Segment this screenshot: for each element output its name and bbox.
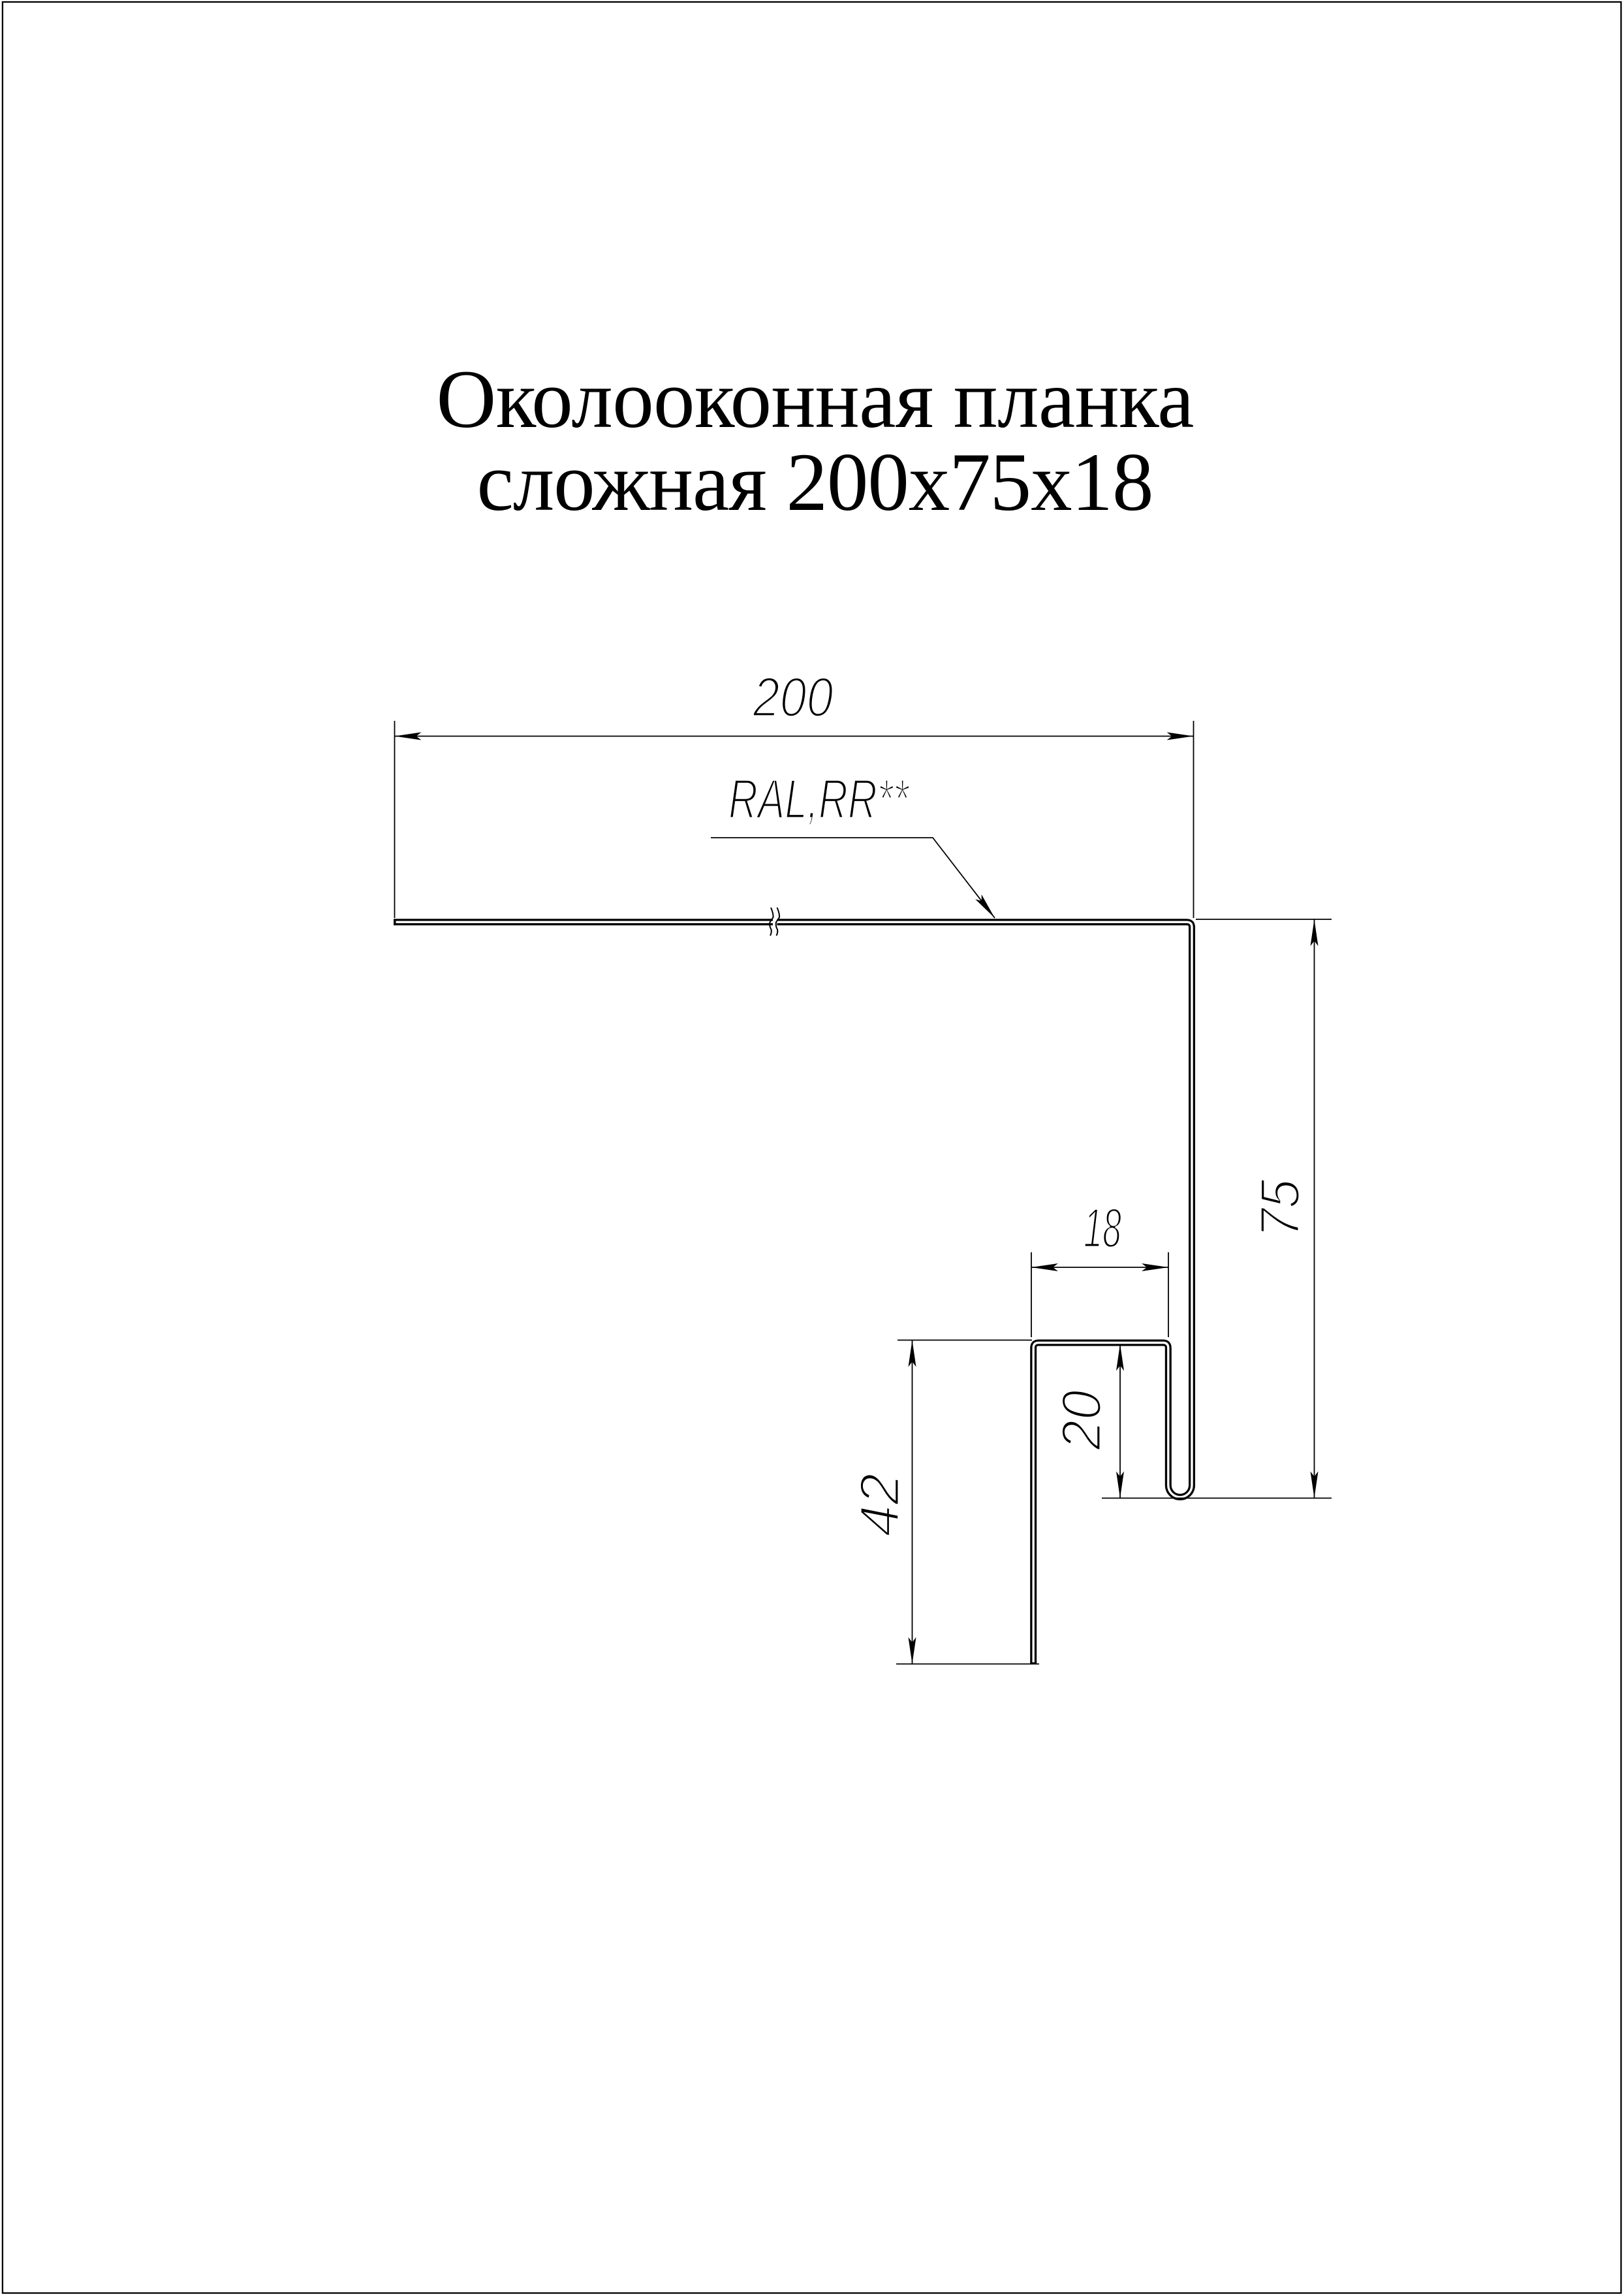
svg-text:18: 18 [1084, 1197, 1121, 1259]
svg-text:RAL,RR**: RAL,RR** [728, 768, 910, 831]
svg-text:20: 20 [1051, 1390, 1113, 1451]
svg-text:200: 200 [753, 667, 834, 729]
svg-text:сложная 200х75х18: сложная 200х75х18 [477, 437, 1154, 528]
svg-text:75: 75 [1249, 1179, 1311, 1238]
svg-text:42: 42 [849, 1474, 911, 1537]
svg-text:Околооконная планка: Околооконная планка [437, 354, 1195, 445]
